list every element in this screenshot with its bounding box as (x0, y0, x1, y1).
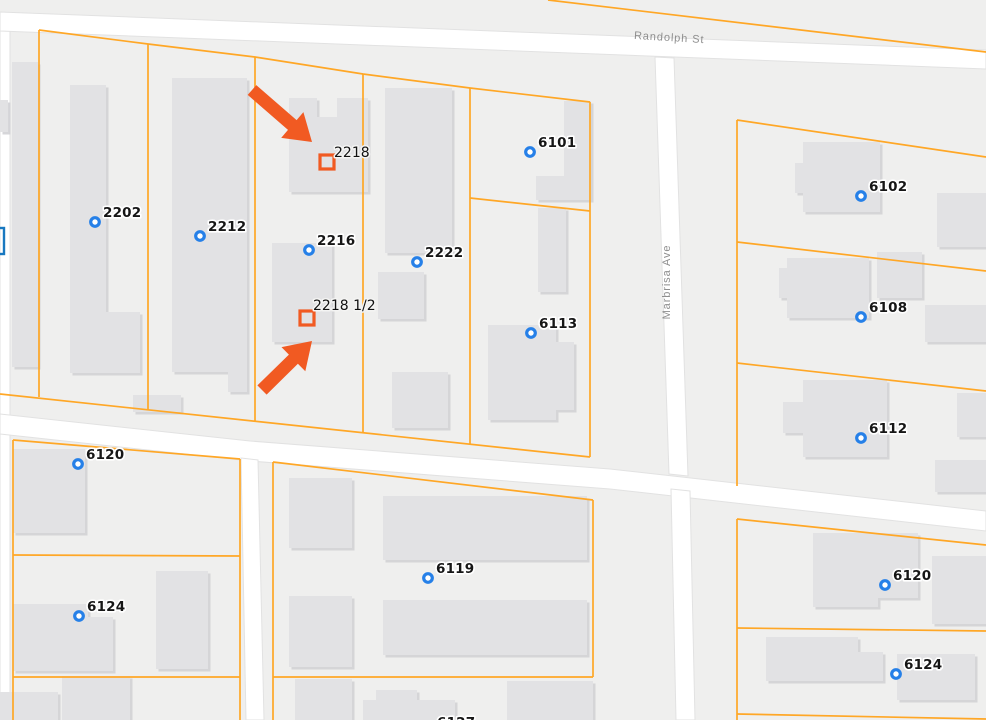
building-footprint (935, 460, 986, 492)
address-marker-label-partial: 6127 (437, 715, 475, 720)
building-footprint (787, 258, 869, 318)
building-footprint (538, 208, 566, 292)
address-point-icon[interactable] (892, 670, 901, 679)
address-point-icon[interactable] (413, 258, 422, 267)
building-footprint (228, 372, 247, 392)
address-point-icon[interactable] (305, 246, 314, 255)
address-marker-label: 6124 (87, 599, 125, 615)
callout-arrow-down-right (248, 85, 312, 142)
street-label-marbrisa: Marbrisa Ave (661, 245, 673, 320)
address-marker-label: 6108 (869, 300, 907, 316)
parcel-boundary (737, 714, 986, 719)
address-point-icon[interactable] (526, 148, 535, 157)
building-footprint (932, 556, 986, 624)
building-footprint (0, 692, 58, 720)
address-point-icon[interactable] (75, 612, 84, 621)
building-footprint (289, 596, 352, 667)
building-footprint (766, 637, 858, 681)
address-point-icon[interactable] (857, 313, 866, 322)
callout-arrows (248, 85, 312, 395)
address-marker-label: 6120 (86, 447, 124, 463)
address-marker-6119[interactable]: 6119 (424, 561, 475, 582)
building-footprint (813, 533, 918, 598)
building-footprint (556, 342, 574, 410)
address-point-icon[interactable] (196, 232, 205, 241)
street-left-edge (0, 30, 10, 720)
street-marbrisa-lower (671, 489, 695, 720)
building-footprint (795, 163, 803, 193)
callout-arrow-up-right (257, 341, 312, 395)
building-footprint (392, 372, 448, 428)
address-marker-label: 6101 (538, 135, 576, 151)
building-footprint (803, 142, 880, 212)
building-footprint (858, 652, 883, 681)
address-point-icon[interactable] (91, 218, 100, 227)
parcel-boundary (737, 628, 986, 631)
address-marker-label: 2202 (103, 205, 141, 221)
building-footprint (925, 305, 986, 342)
address-marker-label: 2212 (208, 219, 246, 235)
highlight-label: 2218 (334, 145, 370, 161)
address-point-icon[interactable] (857, 434, 866, 443)
building-footprint (536, 176, 564, 200)
building-footprint-2216 (272, 243, 332, 342)
building-footprint (937, 193, 986, 247)
address-marker-label: 2216 (317, 233, 355, 249)
highlight-label: 2218 1/2 (313, 298, 376, 314)
map-canvas: Randolph St Marbrisa Ave 22182218 1/2 22… (0, 0, 986, 720)
address-point-icon[interactable] (881, 581, 890, 590)
building-footprint (62, 676, 130, 720)
building-footprint (88, 617, 113, 671)
address-point-icon[interactable] (857, 192, 866, 201)
address-point-icon[interactable] (424, 574, 433, 583)
building-footprint (295, 679, 352, 720)
address-point-icon[interactable] (527, 329, 536, 338)
building-footprint (0, 100, 8, 132)
building-footprint (507, 681, 593, 720)
parcel-boundary (13, 555, 240, 556)
address-marker-label: 6120 (893, 568, 931, 584)
address-marker-label: 6113 (539, 316, 577, 332)
building-footprint (803, 380, 887, 457)
building-footprint (383, 600, 587, 655)
building-footprint (385, 88, 452, 253)
street-lower-left (241, 458, 264, 720)
building-footprint (957, 393, 986, 437)
building-footprint (488, 325, 556, 420)
building-footprint (779, 268, 787, 298)
building-footprint (813, 598, 878, 607)
building-footprint (783, 402, 803, 433)
address-marker-label: 6119 (436, 561, 474, 577)
partial-label-layer: 6127 (437, 715, 475, 720)
building-footprint (12, 62, 38, 367)
map-viewport[interactable]: Randolph St Marbrisa Ave 22182218 1/2 22… (0, 0, 986, 720)
address-marker-label: 2222 (425, 245, 463, 261)
address-marker-label: 6112 (869, 421, 907, 437)
building-footprint (70, 85, 106, 373)
building-footprint (289, 478, 352, 548)
building-footprint (156, 571, 208, 669)
building-footprint (378, 272, 424, 319)
address-marker-label: 6102 (869, 179, 907, 195)
address-point-icon[interactable] (74, 460, 83, 469)
building-footprint (104, 312, 140, 373)
address-marker-label: 6124 (904, 657, 942, 673)
building-footprint (383, 496, 587, 560)
